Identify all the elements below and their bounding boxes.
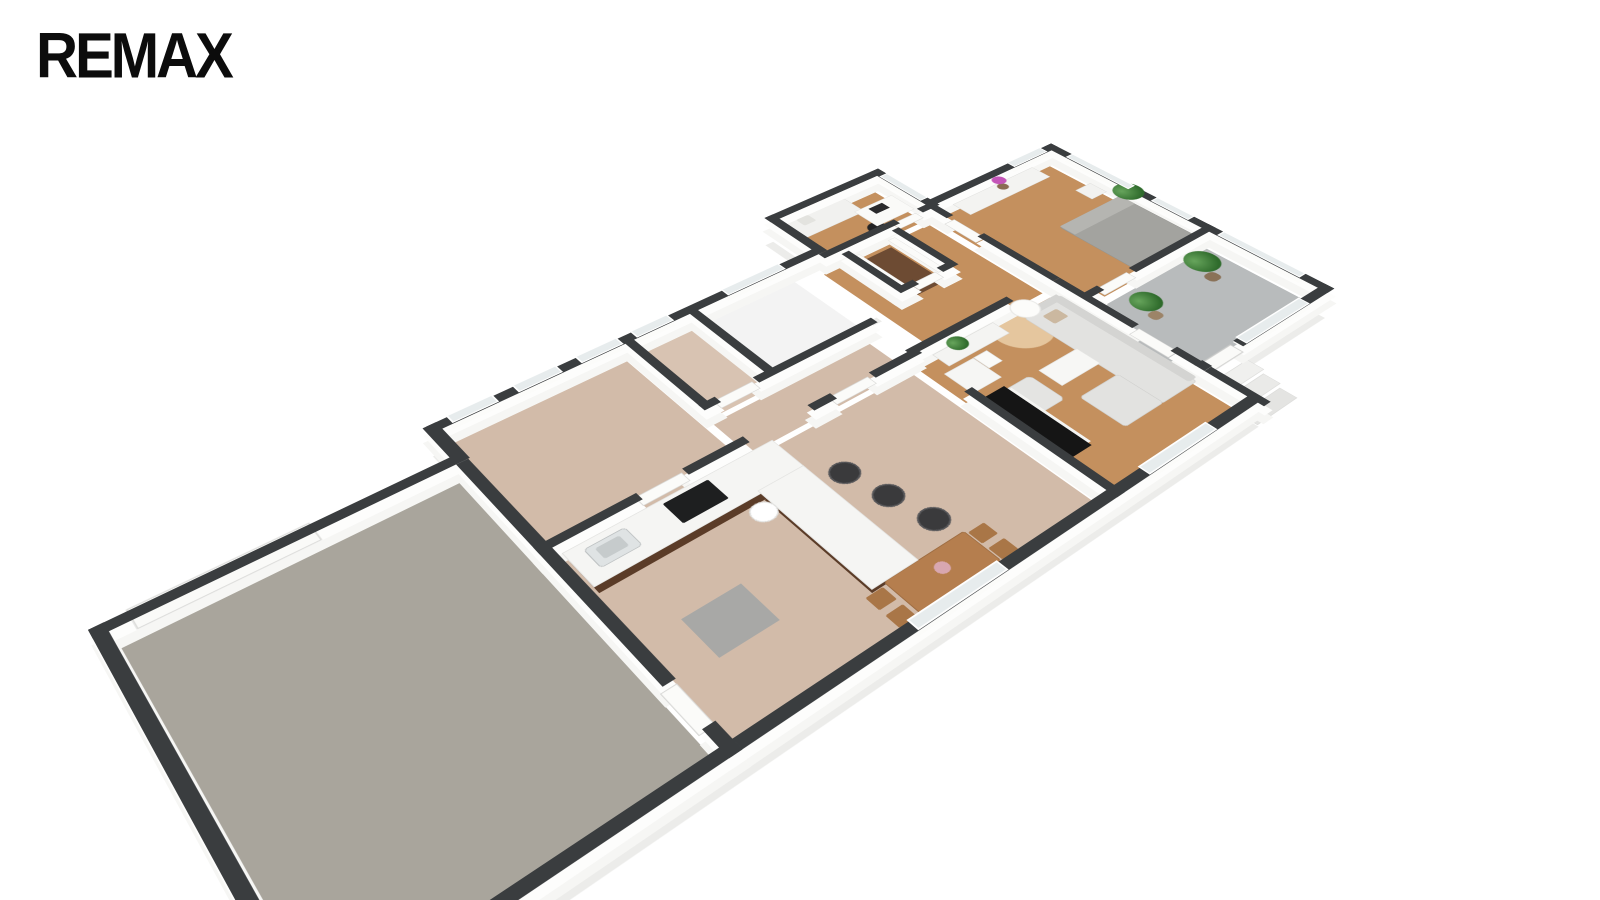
floorplan-3d [41,133,1396,900]
floorplan-render: REMAX [0,0,1600,900]
floorplan-scene [0,0,1600,900]
